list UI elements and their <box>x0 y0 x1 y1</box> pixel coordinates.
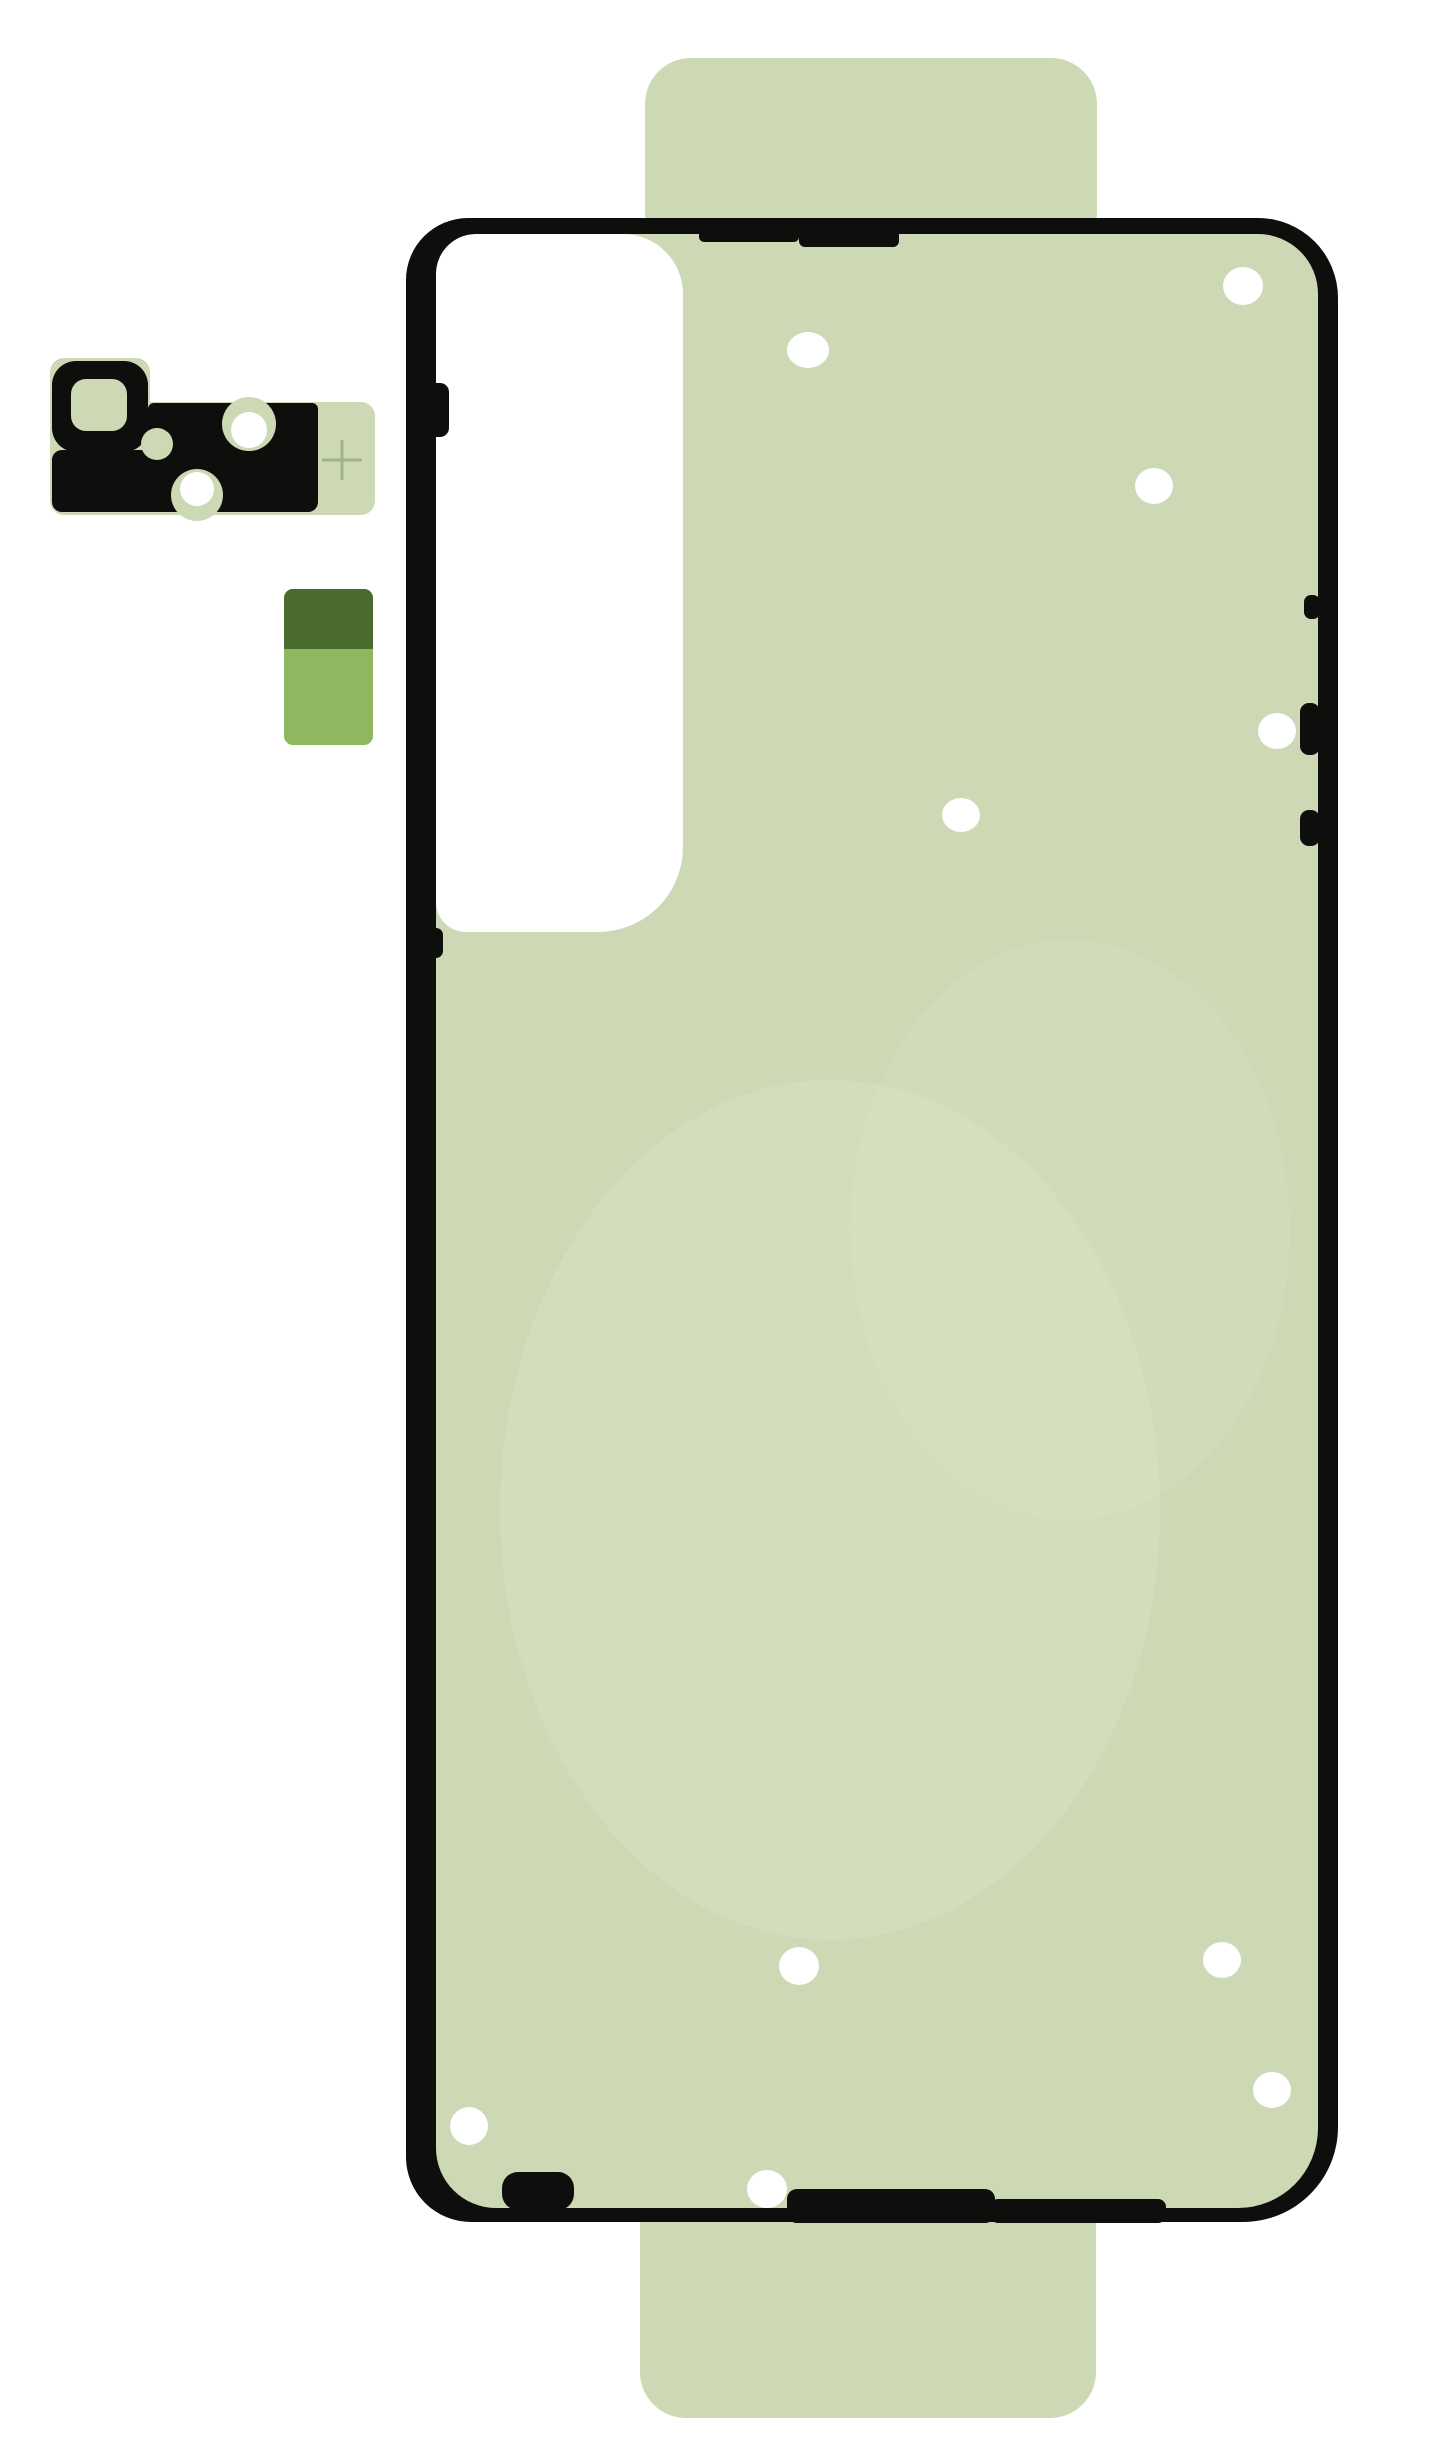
camera-cutout <box>436 234 683 932</box>
camera-piece-hole <box>231 412 267 448</box>
product-photo <box>0 0 1445 2452</box>
two-tone-top-half <box>284 589 373 649</box>
alignment-hole <box>1258 713 1296 749</box>
adhesive-notch <box>425 383 449 437</box>
alignment-hole <box>1203 1942 1241 1978</box>
adhesive-notch <box>1304 595 1320 619</box>
adhesive-kit-illustration <box>0 0 1445 2452</box>
alignment-hole <box>1223 267 1263 305</box>
camera-lens-window <box>71 379 127 431</box>
adhesive-notch <box>502 2172 574 2210</box>
adhesive-notch <box>787 2189 995 2223</box>
adhesive-notch <box>799 228 899 247</box>
liner-sheen <box>850 940 1290 1520</box>
camera-adhesive-piece <box>50 358 375 521</box>
adhesive-notch <box>1300 810 1320 846</box>
alignment-hole <box>1253 2072 1291 2108</box>
main-adhesive-sheet <box>406 218 1338 2223</box>
alignment-hole <box>747 2170 787 2208</box>
adhesive-notch <box>699 228 799 242</box>
adhesive-notch <box>1300 703 1320 755</box>
camera-piece-hole <box>180 472 214 506</box>
adhesive-notch <box>427 928 443 958</box>
alignment-hole <box>1135 468 1173 504</box>
alignment-hole <box>450 2107 488 2145</box>
alignment-hole <box>787 332 829 368</box>
alignment-hole <box>779 1947 819 1985</box>
adhesive-notch <box>990 2199 1166 2223</box>
camera-piece-relief <box>141 428 173 460</box>
two-tone-adhesive-piece <box>284 589 373 745</box>
alignment-hole <box>942 798 980 832</box>
